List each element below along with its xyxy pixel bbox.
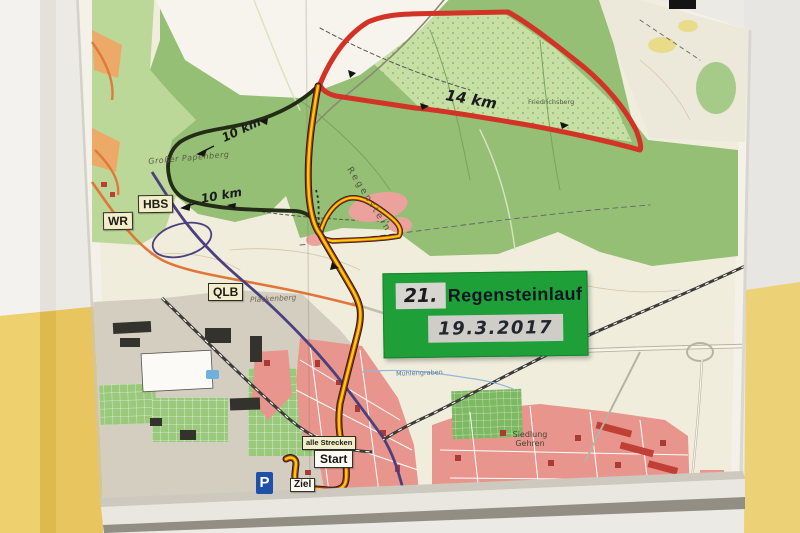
label-alle-strecken: alle Strecken <box>302 436 356 450</box>
map-scene-svg <box>0 0 800 533</box>
label-start: Start <box>314 450 353 468</box>
photo-of-race-map: 21. Regensteinlauf 19.3.2017 HBS WR QLB … <box>0 0 800 533</box>
place-friedrichsberg: Friedrichsberg <box>528 99 574 106</box>
factory-building <box>141 350 213 392</box>
sign-date-label: 19.3.2017 <box>428 314 563 343</box>
marker-hbs: HBS <box>138 195 174 214</box>
label-ziel: Ziel <box>290 478 315 492</box>
field-patch <box>678 20 698 32</box>
small-building <box>110 192 115 197</box>
marker-qlb: QLB <box>208 283 243 301</box>
pond <box>206 370 219 379</box>
wall-corner-yellow <box>40 311 56 533</box>
wall-left-yellow-bright <box>0 312 40 533</box>
map-poster <box>78 0 749 501</box>
wall-right-face <box>744 0 800 300</box>
sign-title: Regensteinlauf <box>448 284 583 307</box>
small-building <box>101 182 107 187</box>
parking-icon: P <box>256 472 273 494</box>
green-patch <box>696 62 736 114</box>
marker-wr: WR <box>103 212 133 231</box>
wall-right-yellow <box>744 282 800 533</box>
map-clip-black <box>669 0 696 9</box>
place-muehlengraben: Mühlengraben <box>396 369 443 377</box>
event-sign: 21. Regensteinlauf 19.3.2017 <box>382 271 588 359</box>
place-siedlung-gehren: Siedlung Gehren <box>505 430 555 448</box>
field-patch <box>648 37 676 53</box>
sign-number-label: 21. <box>396 283 446 310</box>
